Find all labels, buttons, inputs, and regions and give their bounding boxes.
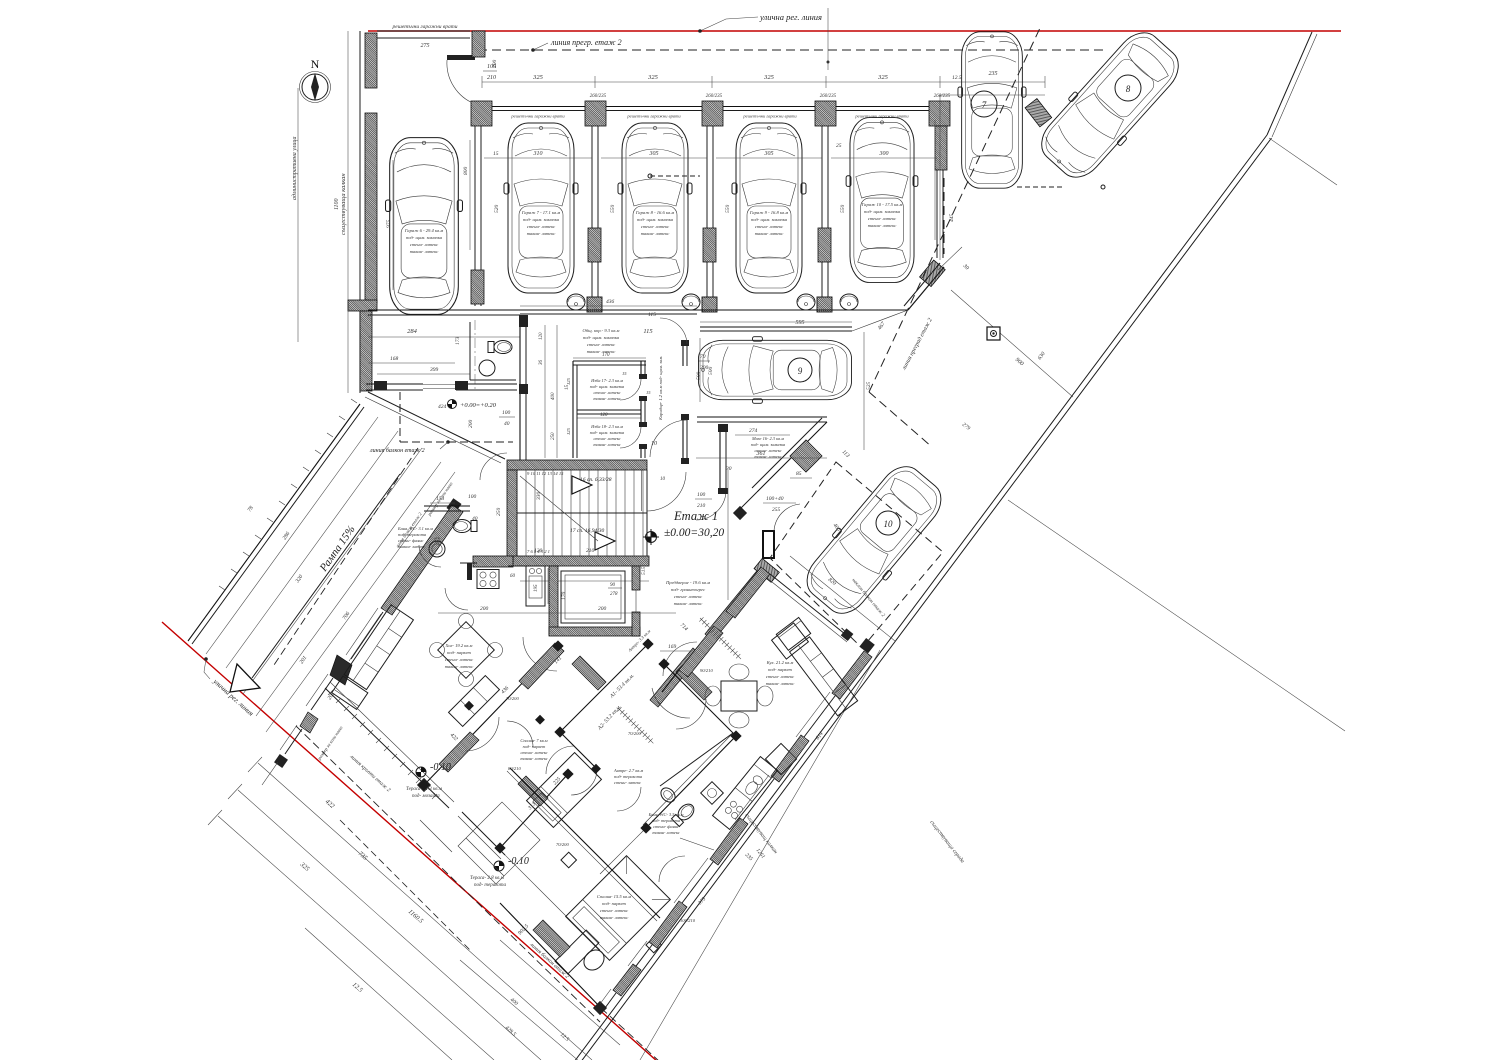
svg-text:325: 325 bbox=[532, 74, 544, 81]
svg-text:таван- латекс: таван- латекс bbox=[587, 349, 616, 354]
svg-text:стени- латекс: стени- латекс bbox=[868, 216, 896, 221]
svg-text:305: 305 bbox=[764, 151, 774, 157]
svg-text:330: 330 bbox=[536, 492, 542, 502]
svg-text:Кух. 21.2 кв.м: Кух. 21.2 кв.м bbox=[766, 660, 794, 665]
svg-text:под- щам. замазка: под- щам. замазка bbox=[590, 384, 625, 389]
svg-text:таван- латекс: таван- латекс bbox=[755, 231, 784, 236]
svg-text:под- щам. замазка: под- щам. замазка bbox=[583, 335, 620, 340]
svg-text:400: 400 bbox=[551, 392, 556, 400]
svg-text:10: 10 bbox=[651, 441, 657, 447]
svg-text:таван- латекс: таван- латекс bbox=[410, 249, 439, 254]
svg-text:169: 169 bbox=[668, 644, 677, 650]
svg-text:16 сп. 6,33/28: 16 сп. 6,33/28 bbox=[580, 477, 612, 483]
svg-text:Етаж 1: Етаж 1 bbox=[673, 509, 718, 523]
svg-text:стени- латекс: стени- латекс bbox=[520, 750, 547, 755]
svg-text:стени- фаянс: стени- фаянс bbox=[398, 538, 424, 543]
svg-text:Спалня- 7 кв.м: Спалня- 7 кв.м bbox=[520, 738, 547, 743]
svg-text:под- паркет: под- паркет bbox=[768, 667, 792, 672]
svg-text:100/210: 100/210 bbox=[680, 918, 696, 923]
svg-text:N: N bbox=[311, 57, 320, 71]
svg-text:под- теракота: под- теракота bbox=[614, 774, 643, 779]
svg-text:Гараж 8 - 16.6 кв.м: Гараж 8 - 16.6 кв.м bbox=[635, 210, 674, 215]
svg-text:278: 278 bbox=[610, 592, 618, 597]
svg-text:525: 525 bbox=[866, 382, 872, 391]
svg-text:25: 25 bbox=[836, 143, 842, 149]
svg-text:153: 153 bbox=[436, 496, 445, 502]
svg-text:550: 550 bbox=[725, 205, 731, 214]
svg-text:200: 200 bbox=[492, 60, 498, 69]
svg-text:90/210: 90/210 bbox=[700, 668, 713, 673]
svg-text:решетъчни гаражни врати: решетъчни гаражни врати bbox=[626, 114, 681, 119]
svg-text:70/200: 70/200 bbox=[556, 842, 569, 847]
svg-text:под- щам. замазка: под- щам. замазка bbox=[590, 430, 625, 435]
svg-text:таван- латекс: таван- латекс bbox=[674, 601, 703, 606]
svg-text:260/235: 260/235 bbox=[706, 94, 723, 99]
svg-text:+0.00=+0.20: +0.00=+0.20 bbox=[460, 402, 497, 409]
svg-text:550: 550 bbox=[840, 205, 846, 214]
svg-text:595: 595 bbox=[796, 320, 805, 326]
svg-text:Гараж 10 - 17.5 кв.м: Гараж 10 - 17.5 кв.м bbox=[861, 202, 903, 207]
svg-text:210: 210 bbox=[586, 548, 595, 554]
svg-text:90: 90 bbox=[610, 583, 616, 588]
svg-text:стени- латекс: стени- латекс bbox=[600, 908, 628, 913]
svg-text:таван- латекс: таван- латекс bbox=[600, 915, 629, 920]
svg-text:235: 235 bbox=[989, 71, 998, 77]
svg-text:решетъчни гаражни врати: решетъчни гаражни врати bbox=[742, 114, 797, 119]
svg-text:100: 100 bbox=[697, 492, 706, 498]
svg-text:±0.00=30,20: ±0.00=30,20 bbox=[664, 527, 724, 539]
svg-text:линия балкон етаж 2: линия балкон етаж 2 bbox=[369, 447, 425, 454]
svg-text:таван- латекс: таван- латекс bbox=[766, 681, 795, 686]
svg-text:Гараж 7 - 17.1 кв.м: Гараж 7 - 17.1 кв.м bbox=[521, 210, 560, 215]
svg-text:100: 100 bbox=[502, 410, 511, 416]
svg-text:210: 210 bbox=[487, 75, 496, 81]
svg-text:170: 170 bbox=[561, 592, 567, 601]
svg-text:стени- латекс: стени- латекс bbox=[674, 594, 702, 599]
svg-text:195: 195 bbox=[534, 584, 539, 592]
svg-text:15: 15 bbox=[622, 371, 627, 376]
svg-text:под- паркет: под- паркет bbox=[602, 901, 626, 906]
svg-text:40: 40 bbox=[504, 420, 510, 427]
svg-text:500: 500 bbox=[696, 372, 702, 381]
svg-text:70/200: 70/200 bbox=[506, 696, 519, 701]
svg-text:таван- латекс: таван- латекс bbox=[527, 231, 556, 236]
svg-text:100: 100 bbox=[468, 494, 477, 500]
svg-text:15: 15 bbox=[493, 151, 499, 157]
svg-text:Изба 18- 2.3 кв.м: Изба 18- 2.3 кв.м bbox=[590, 424, 623, 429]
svg-text:административна улица: административна улица bbox=[291, 137, 298, 200]
svg-text:12.5: 12.5 bbox=[952, 75, 962, 81]
svg-text:стени- латекс: стени- латекс bbox=[527, 224, 555, 229]
svg-text:под- теракота: под- теракота bbox=[652, 818, 681, 823]
svg-text:200: 200 bbox=[598, 606, 607, 612]
svg-text:под- теракота: под- теракота bbox=[398, 532, 427, 537]
svg-text:Мазе 16- 2.3 кв.м: Мазе 16- 2.3 кв.м bbox=[751, 436, 784, 441]
svg-text:9: 9 bbox=[798, 366, 803, 376]
svg-text:10: 10 bbox=[884, 519, 894, 529]
svg-text:под- щам. замазка: под- щам. замазка bbox=[637, 217, 674, 222]
svg-text:под- теракота: под- теракота bbox=[474, 883, 507, 888]
svg-text:Спалня- 15.5 кв.м: Спалня- 15.5 кв.м bbox=[597, 894, 631, 899]
svg-text:325: 325 bbox=[763, 74, 775, 81]
svg-text:445: 445 bbox=[948, 214, 955, 223]
svg-text:стени- латекс: стени- латекс bbox=[587, 342, 615, 347]
svg-text:под- щам. замазка: под- щам. замазка bbox=[751, 217, 788, 222]
svg-text:Коридор- 1.2 кв.м под- щам. з: Коридор- 1.2 кв.м под- щам. зам. bbox=[658, 356, 663, 421]
svg-text:таван- латекс: таван- латекс bbox=[652, 830, 679, 835]
svg-text:стени- латекс: стени- латекс bbox=[614, 780, 641, 785]
svg-text:улична рег. линия: улична рег. линия bbox=[759, 12, 822, 22]
svg-text:325: 325 bbox=[647, 74, 659, 81]
svg-text:под- щам. замазка: под- щам. замазка bbox=[864, 209, 901, 214]
svg-text:85: 85 bbox=[796, 471, 802, 477]
svg-text:200: 200 bbox=[480, 606, 489, 612]
svg-text:таван- латекс: таван- латекс bbox=[398, 544, 425, 549]
svg-text:таван- латекс: таван- латекс bbox=[445, 664, 474, 669]
svg-text:стени- латекс: стени- латекс bbox=[445, 657, 473, 662]
svg-text:260/235: 260/235 bbox=[820, 94, 837, 99]
svg-text:под- паркет: под- паркет bbox=[523, 744, 546, 749]
svg-text:250: 250 bbox=[496, 508, 502, 517]
svg-text:Гараж 9 - 16.8 кв.м: Гараж 9 - 16.8 кв.м bbox=[749, 210, 788, 215]
svg-text:таван- латекс: таван- латекс bbox=[868, 223, 897, 228]
svg-text:под- щам. замазка: под- щам. замазка bbox=[406, 235, 443, 240]
svg-text:таван- латекс: таван- латекс bbox=[641, 231, 670, 236]
svg-text:под- мозайка: под- мозайка bbox=[412, 793, 440, 799]
svg-text:310: 310 bbox=[533, 151, 543, 157]
svg-text:36: 36 bbox=[539, 360, 544, 366]
svg-text:стени- латекс: стени- латекс bbox=[593, 436, 620, 441]
svg-text:115: 115 bbox=[648, 312, 656, 318]
svg-text:125: 125 bbox=[566, 377, 571, 385]
svg-text:1100: 1100 bbox=[334, 198, 340, 210]
svg-text:Изба 17- 2.3 кв.м: Изба 17- 2.3 кв.м bbox=[590, 378, 623, 383]
svg-text:стени- латекс: стени- латекс bbox=[593, 390, 620, 395]
svg-text:стени- латекс: стени- латекс bbox=[641, 224, 669, 229]
svg-text:Антре- 2.7 кв.м: Антре- 2.7 кв.м bbox=[613, 768, 643, 773]
svg-text:305: 305 bbox=[649, 151, 659, 157]
svg-text:7: 7 bbox=[982, 100, 987, 110]
svg-text:под- щам. замазка: под- щам. замазка bbox=[523, 217, 560, 222]
svg-text:решетъчни гаражни врати: решетъчни гаражни врати bbox=[392, 24, 458, 30]
svg-text:550: 550 bbox=[610, 205, 616, 214]
svg-text:стени- фаянс: стени- фаянс bbox=[653, 824, 679, 829]
svg-text:10: 10 bbox=[660, 477, 666, 482]
svg-text:15: 15 bbox=[646, 390, 651, 395]
svg-text:таван- латекс: таван- латекс bbox=[593, 396, 620, 401]
svg-text:100+40: 100+40 bbox=[766, 495, 784, 502]
svg-text:70/200: 70/200 bbox=[628, 731, 641, 736]
svg-text:-0.10: -0.10 bbox=[430, 762, 451, 773]
svg-text:Преддверие - 19.6 кв.м: Преддверие - 19.6 кв.м bbox=[665, 580, 710, 585]
svg-text:250: 250 bbox=[551, 432, 556, 440]
svg-text:168: 168 bbox=[390, 356, 399, 362]
svg-text:съществуваща калкан: съществуваща калкан bbox=[340, 173, 347, 235]
svg-text:под- щам. замазка: под- щам. замазка bbox=[751, 442, 786, 447]
svg-text:17 сп. 16,94/30: 17 сп. 16,94/30 bbox=[570, 527, 604, 534]
svg-text:274: 274 bbox=[749, 427, 758, 434]
svg-text:125: 125 bbox=[566, 427, 571, 435]
svg-text:линия прегр. етаж 2: линия прегр. етаж 2 bbox=[550, 38, 622, 47]
svg-text:под- гранитогрес: под- гранитогрес bbox=[671, 587, 705, 592]
svg-text:424: 424 bbox=[438, 403, 447, 410]
svg-text:решетъчни гаражни врати: решетъчни гаражни врати bbox=[510, 114, 565, 119]
svg-text:60: 60 bbox=[510, 574, 516, 579]
svg-text:Гараж 6 - 29.4 кв.м: Гараж 6 - 29.4 кв.м bbox=[404, 228, 443, 233]
svg-text:500: 500 bbox=[708, 367, 714, 376]
svg-text:436: 436 bbox=[606, 298, 615, 305]
svg-text:под- паркет: под- паркет bbox=[447, 650, 471, 655]
svg-text:255: 255 bbox=[772, 507, 781, 513]
svg-text:520: 520 bbox=[494, 205, 500, 214]
svg-text:80/210: 80/210 bbox=[508, 766, 521, 771]
svg-text:975: 975 bbox=[386, 220, 392, 229]
svg-text:40: 40 bbox=[472, 515, 478, 522]
svg-text:120: 120 bbox=[539, 332, 544, 340]
svg-text:стени- латекс: стени- латекс bbox=[410, 242, 438, 247]
svg-text:115: 115 bbox=[643, 328, 653, 335]
svg-text:120: 120 bbox=[534, 548, 543, 554]
svg-text:200: 200 bbox=[468, 420, 474, 429]
svg-text:284: 284 bbox=[407, 328, 418, 335]
svg-text:399: 399 bbox=[429, 367, 439, 373]
svg-text:стени- латекс: стени- латекс bbox=[766, 674, 794, 679]
svg-text:800: 800 bbox=[463, 167, 469, 176]
svg-text:173: 173 bbox=[455, 337, 461, 346]
svg-text:300: 300 bbox=[879, 151, 889, 157]
svg-text:515: 515 bbox=[641, 567, 647, 576]
svg-text:260/235: 260/235 bbox=[590, 94, 607, 99]
svg-text:9 10 11 12 13 14 15: 9 10 11 12 13 14 15 bbox=[527, 471, 564, 476]
svg-text:170: 170 bbox=[602, 353, 610, 358]
svg-text:361: 361 bbox=[756, 451, 766, 457]
svg-text:325: 325 bbox=[877, 74, 889, 81]
svg-text:стени- латекс: стени- латекс bbox=[755, 224, 783, 229]
svg-text:таван- латекс: таван- латекс bbox=[520, 756, 547, 761]
svg-text:Общ. кор.- 9.3 кв.м: Общ. кор.- 9.3 кв.м bbox=[583, 328, 620, 333]
svg-text:8: 8 bbox=[1126, 84, 1131, 94]
svg-text:Хол- 19.2 кв.м: Хол- 19.2 кв.м bbox=[445, 643, 473, 648]
svg-text:275: 275 bbox=[421, 43, 430, 49]
svg-text:таван- латекс: таван- латекс bbox=[593, 442, 620, 447]
